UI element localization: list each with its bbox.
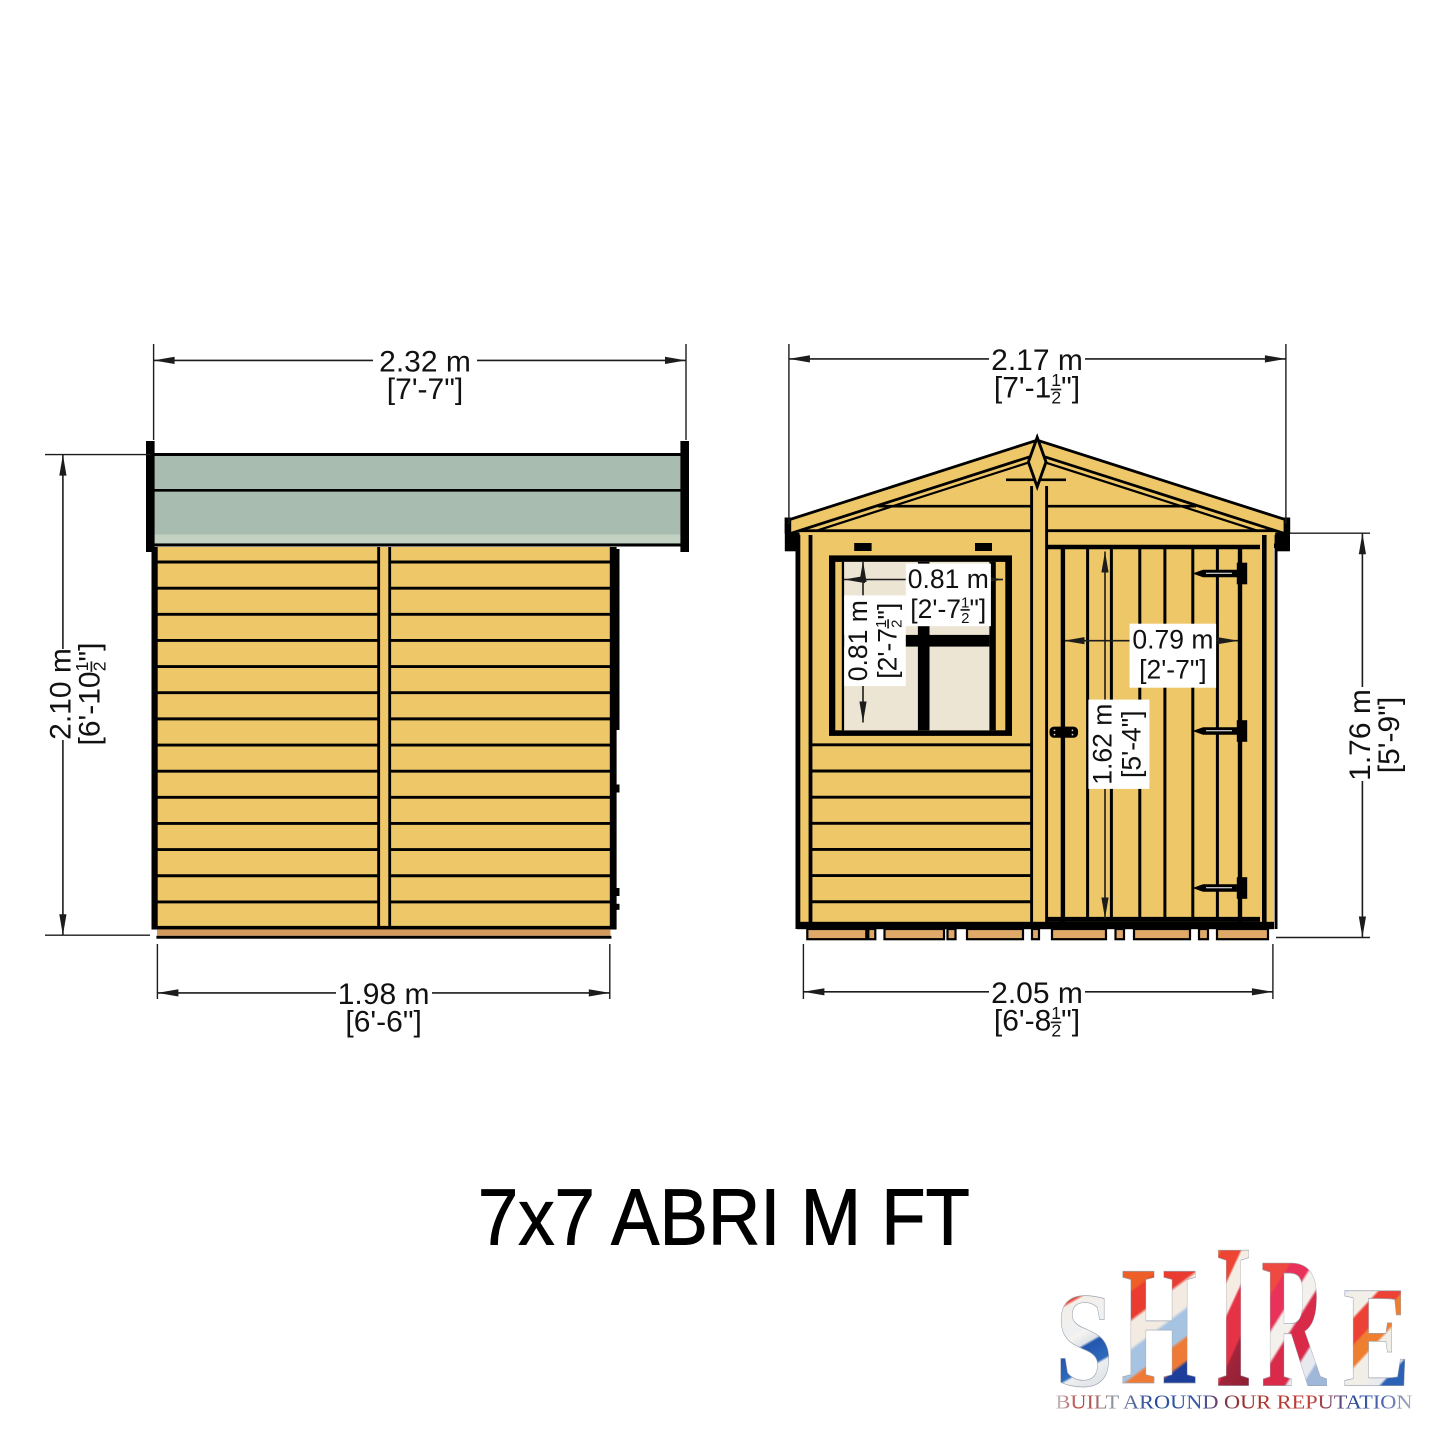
svg-text:0.79 m: 0.79 m <box>1132 625 1213 655</box>
svg-text:[5'-4"]: [5'-4"] <box>1117 710 1147 778</box>
svg-text:[2'-712"]: [2'-712"] <box>872 603 905 679</box>
svg-text:[2'-7"]: [2'-7"] <box>1139 655 1207 685</box>
svg-text:[7'-7"]: [7'-7"] <box>387 373 463 406</box>
svg-text:[6'-812"]: [6'-812"] <box>994 1003 1080 1041</box>
svg-text:[6'-1012"]: [6'-1012"] <box>72 643 110 746</box>
svg-text:0.81 m: 0.81 m <box>908 564 989 594</box>
svg-text:7x7 ABRI M FT: 7x7 ABRI M FT <box>478 1172 970 1261</box>
svg-text:1.76 m: 1.76 m <box>1344 689 1377 781</box>
svg-text:[2'-712"]: [2'-712"] <box>910 594 986 627</box>
svg-text:[5'-9"]: [5'-9"] <box>1373 697 1406 773</box>
svg-text:[6'-6"]: [6'-6"] <box>345 1006 421 1039</box>
svg-text:BUILT AROUND OUR REPUTATION: BUILT AROUND OUR REPUTATION <box>1056 1393 1413 1414</box>
svg-text:0.81 m: 0.81 m <box>843 600 873 681</box>
svg-text:[7'-112"]: [7'-112"] <box>994 370 1080 408</box>
svg-text:1.62 m: 1.62 m <box>1087 704 1117 785</box>
